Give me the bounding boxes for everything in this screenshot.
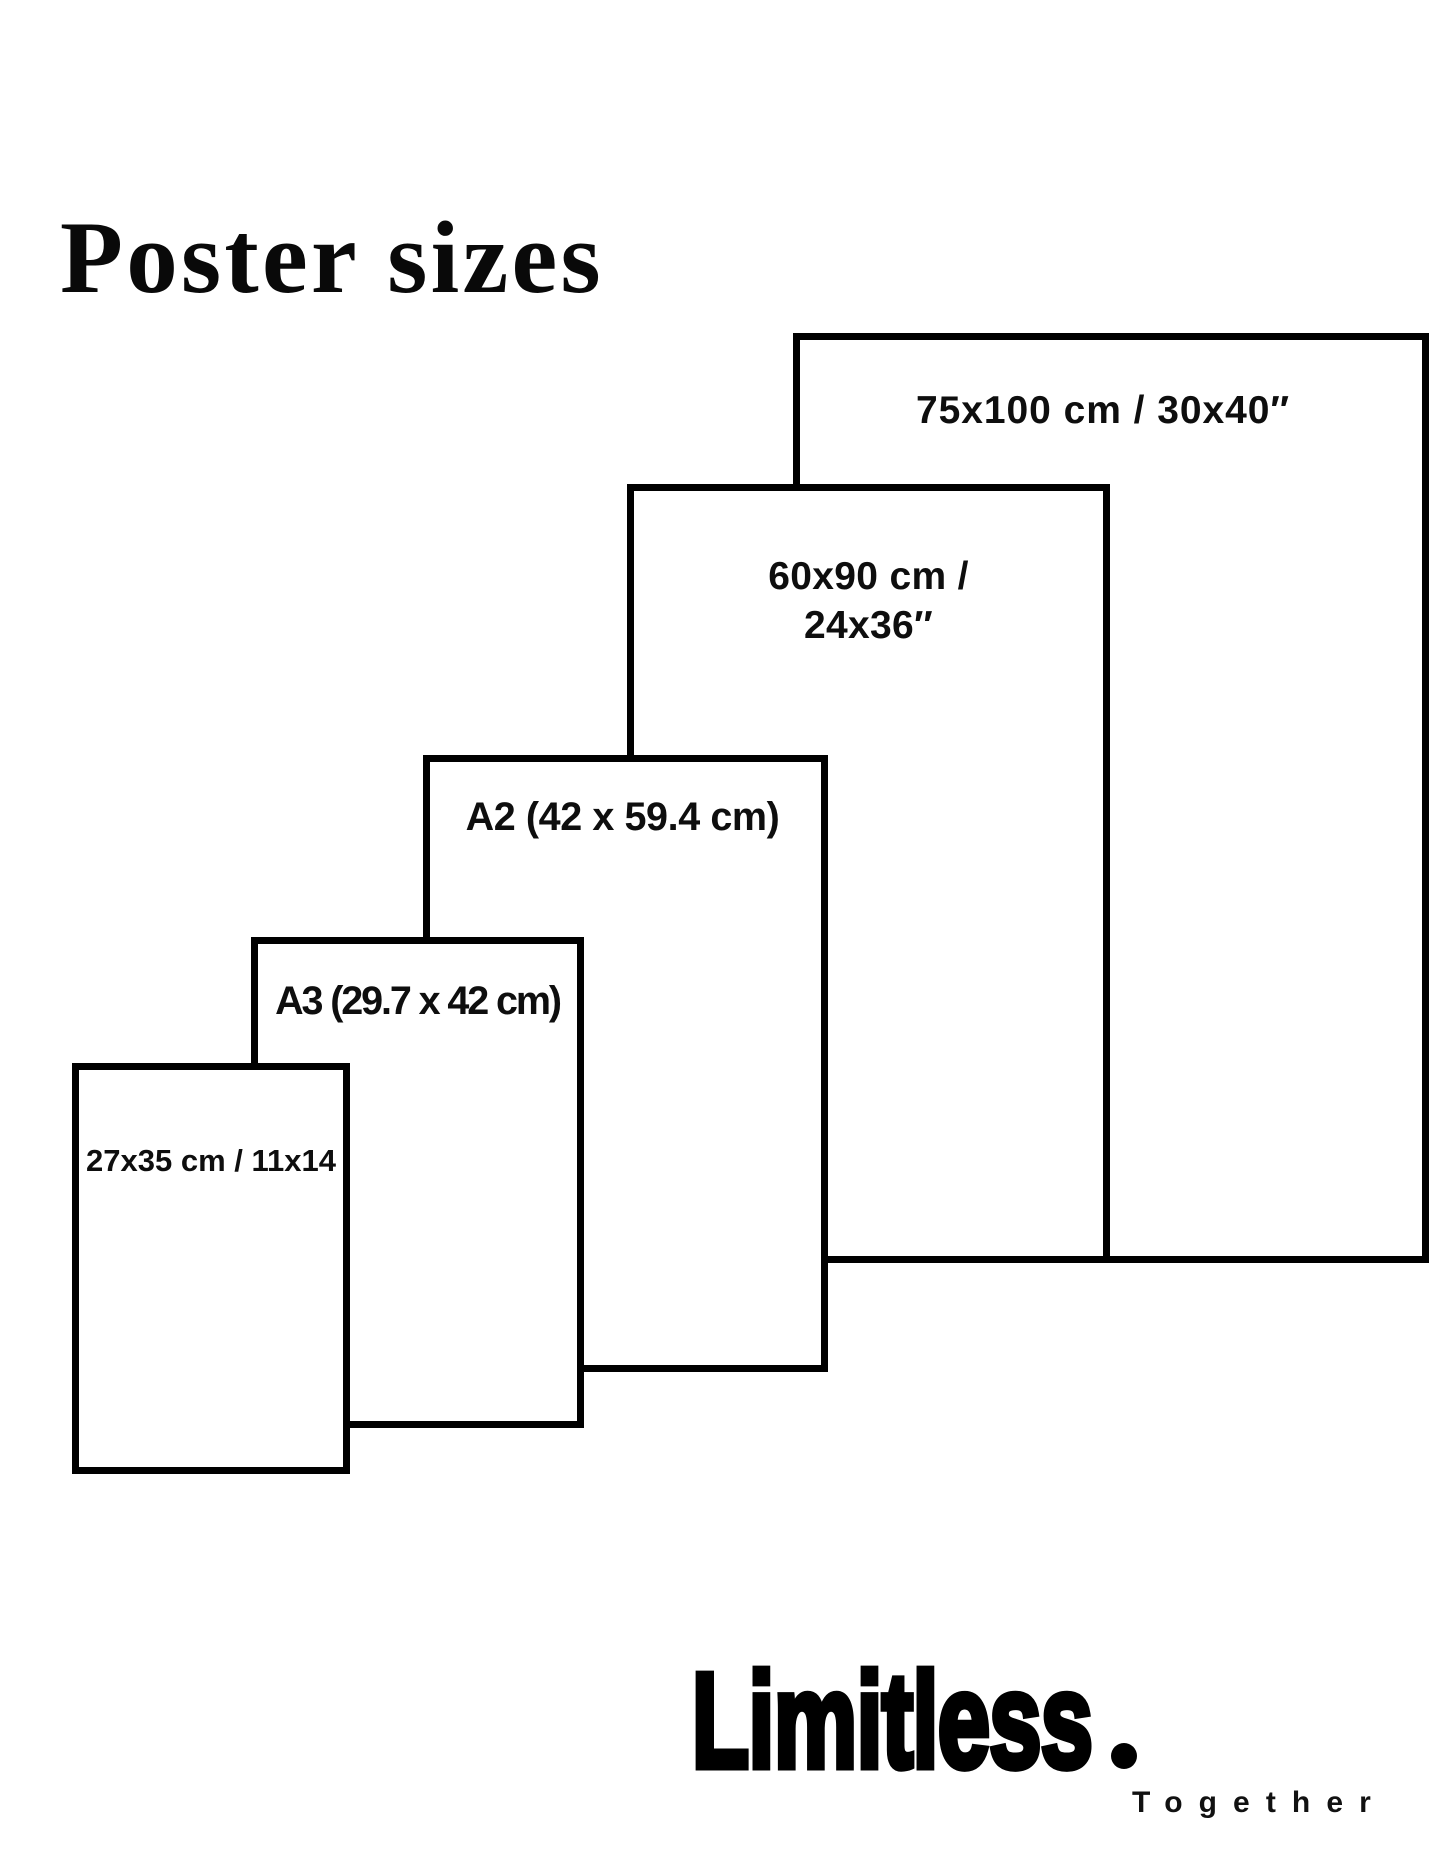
svg-text:Limitless: Limitless: [692, 1660, 1092, 1796]
